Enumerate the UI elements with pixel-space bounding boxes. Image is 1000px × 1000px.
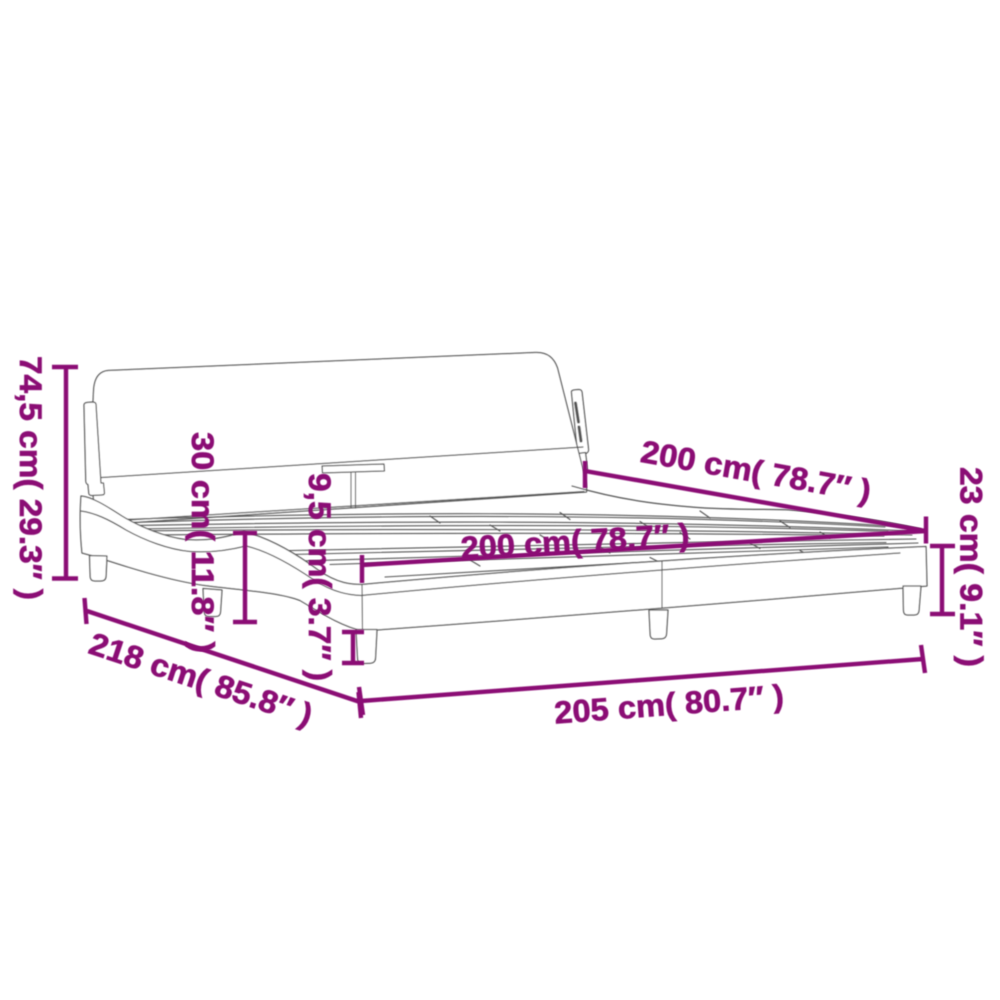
svg-text:23 cm( 9.1″ ): 23 cm( 9.1″ ) bbox=[954, 467, 990, 667]
svg-text:200 cm( 78.7″ ): 200 cm( 78.7″ ) bbox=[638, 433, 874, 509]
svg-text:9,5 cm( 3.7″ ): 9,5 cm( 3.7″ ) bbox=[302, 473, 338, 681]
svg-text:200 cm( 78.7″ ): 200 cm( 78.7″ ) bbox=[460, 516, 691, 566]
svg-text:74,5 cm( 29.3″ ): 74,5 cm( 29.3″ ) bbox=[13, 356, 49, 600]
svg-text:30 cm( 11.8″ ): 30 cm( 11.8″ ) bbox=[185, 432, 221, 653]
